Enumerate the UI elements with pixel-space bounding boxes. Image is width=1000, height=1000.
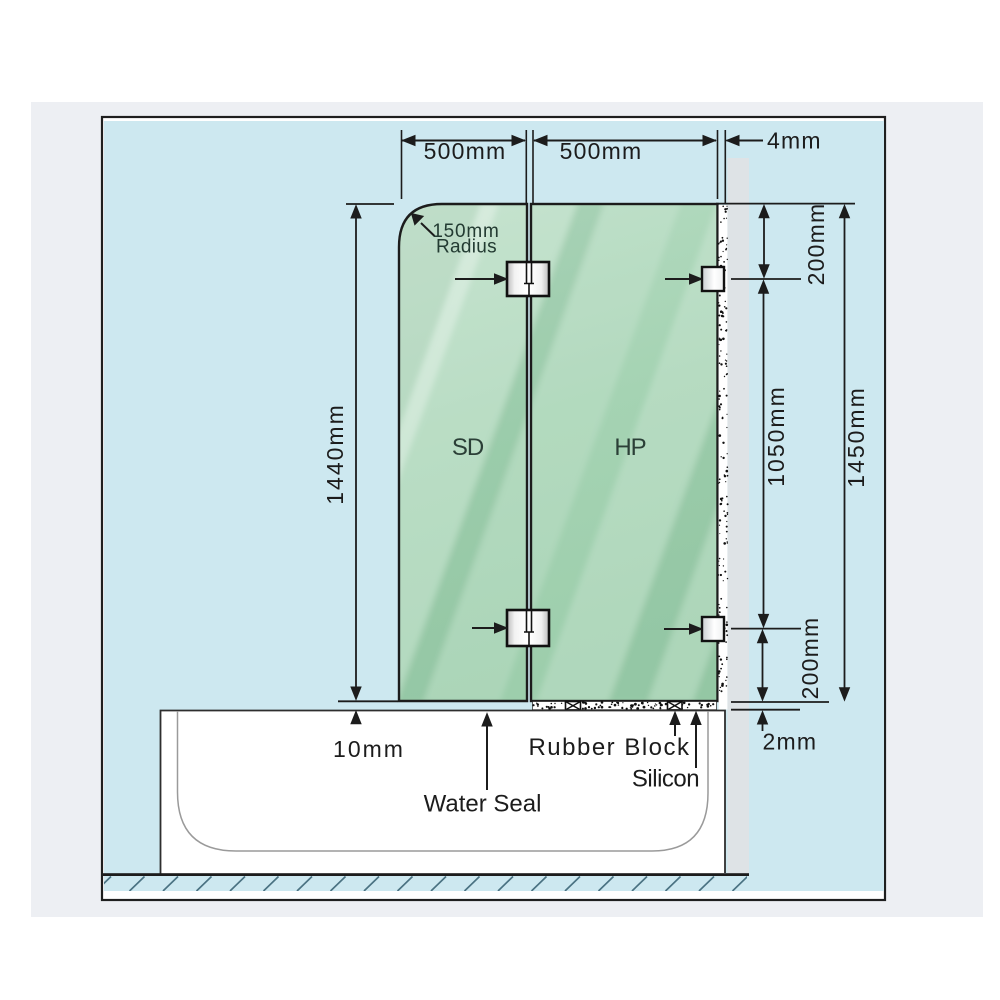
svg-text:2mm: 2mm [763,729,818,755]
svg-text:4mm: 4mm [767,128,822,154]
svg-text:200mm: 200mm [803,203,829,286]
svg-text:500mm: 500mm [560,138,643,164]
svg-text:Rubber Block: Rubber Block [528,734,690,761]
svg-text:10mm: 10mm [333,736,405,762]
svg-text:HP: HP [614,434,645,461]
svg-text:Silicon: Silicon [632,766,699,793]
svg-text:Radius: Radius [436,237,497,258]
svg-text:200mm: 200mm [797,617,823,700]
svg-text:SD: SD [452,434,484,461]
svg-text:Water Seal: Water Seal [424,791,542,818]
svg-text:1450mm: 1450mm [843,386,869,487]
svg-text:1050mm: 1050mm [763,385,789,486]
svg-text:500mm: 500mm [424,138,507,164]
svg-text:1440mm: 1440mm [322,403,348,504]
